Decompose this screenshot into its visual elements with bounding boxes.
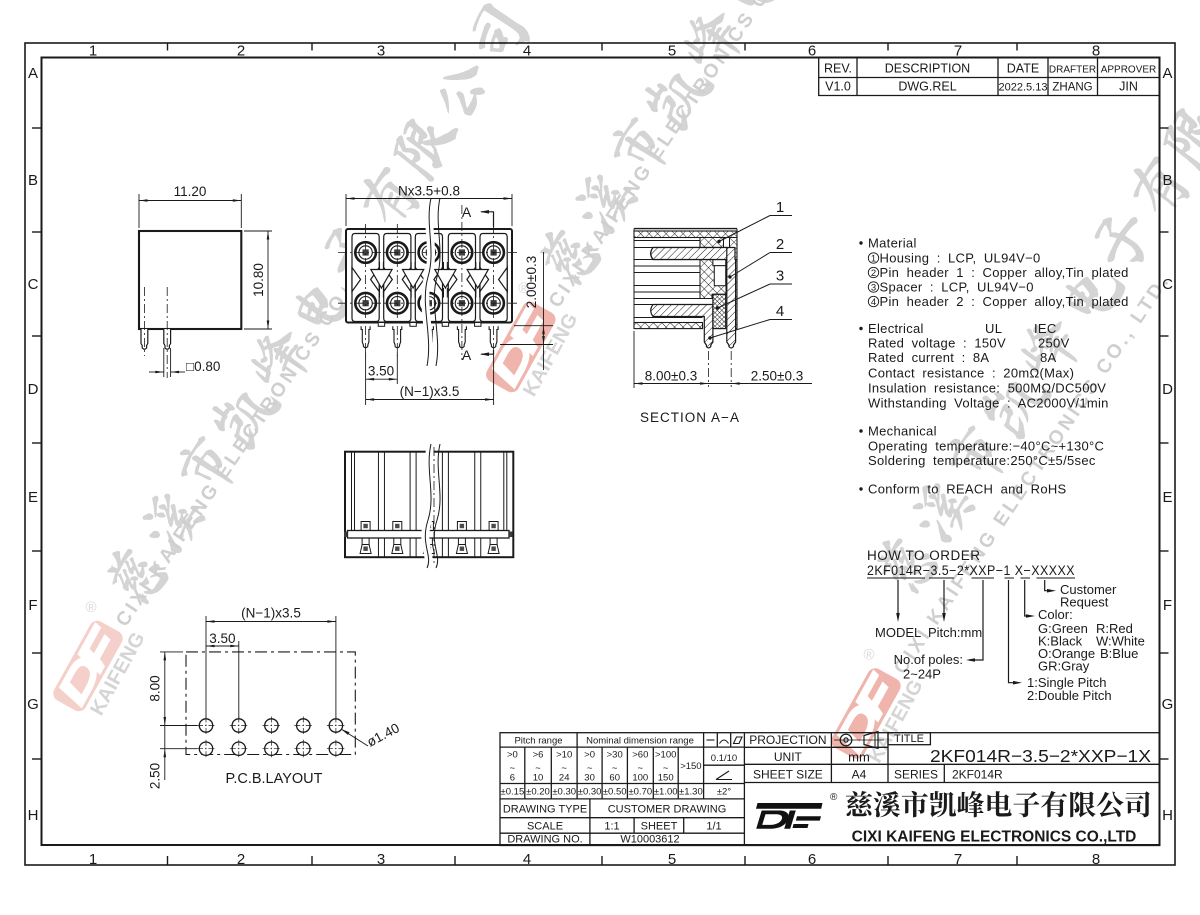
svg-text:JIN: JIN — [1119, 80, 1138, 94]
svg-text:Operating temperature:−40°C~+1: Operating temperature:−40°C~+130°C — [868, 439, 1104, 454]
svg-text:mm: mm — [848, 750, 870, 765]
svg-text:E: E — [28, 489, 38, 506]
svg-text:±0.70: ±0.70 — [628, 787, 652, 798]
svg-text:Soldering temperature:250°C±5/: Soldering temperature:250°C±5/5sec — [868, 453, 1096, 468]
svg-text:B: B — [28, 172, 38, 189]
svg-text:ZHANG: ZHANG — [1052, 82, 1092, 94]
svg-text:3: 3 — [377, 43, 385, 60]
svg-text:5: 5 — [668, 851, 676, 868]
svg-text:100: 100 — [632, 773, 648, 784]
svg-text:REV.: REV. — [824, 62, 852, 76]
svg-text:2.00±0.3: 2.00±0.3 — [524, 256, 539, 308]
svg-text:DATE: DATE — [1007, 62, 1039, 76]
svg-text:4: 4 — [776, 303, 784, 320]
svg-text:E: E — [1162, 489, 1172, 506]
svg-text:3: 3 — [776, 268, 784, 285]
svg-text:±0.50: ±0.50 — [603, 787, 627, 798]
svg-text:Pitch:mm: Pitch:mm — [928, 625, 982, 640]
svg-text:1: 1 — [89, 43, 97, 60]
svg-text:±1.00: ±1.00 — [654, 787, 678, 798]
svg-text:2.50±0.3: 2.50±0.3 — [751, 369, 803, 384]
svg-text:ø1.40: ø1.40 — [364, 720, 402, 749]
svg-text:®: ® — [830, 792, 838, 803]
svg-text:1/1: 1/1 — [706, 821, 721, 833]
svg-text:HOW TO ORDER: HOW TO ORDER — [867, 548, 981, 563]
svg-text:UL: UL — [985, 321, 1002, 336]
svg-text:Contact resistance : 20mΩ(Max): Contact resistance : 20mΩ(Max) — [868, 366, 1074, 381]
svg-text:±0.30: ±0.30 — [552, 787, 576, 798]
svg-text:□0.80: □0.80 — [186, 359, 220, 374]
svg-text:B:Blue: B:Blue — [1100, 646, 1138, 661]
svg-text:Request: Request — [1060, 595, 1109, 610]
svg-text:60: 60 — [609, 773, 620, 784]
svg-text:10: 10 — [533, 773, 544, 784]
svg-text:CIXI KAIFENG ELECTRONICS CO.,L: CIXI KAIFENG ELECTRONICS CO.,LTD — [852, 829, 1137, 846]
svg-text:>60: >60 — [632, 750, 648, 761]
svg-text:Pin header 2 : Copper alloy,Ti: Pin header 2 : Copper alloy,Tin plated — [880, 294, 1129, 309]
svg-text:2: 2 — [237, 43, 245, 60]
svg-text:Conform to REACH and RoHS: Conform to REACH and RoHS — [868, 482, 1067, 497]
svg-text:H: H — [28, 807, 39, 824]
svg-text:1: 1 — [89, 851, 97, 868]
svg-text:Withstanding Voltage : AC2000V: Withstanding Voltage : AC2000V/1min — [868, 396, 1109, 411]
svg-text:±0.15: ±0.15 — [501, 787, 525, 798]
svg-text:F: F — [1163, 597, 1172, 614]
svg-text:(N−1)x3.5: (N−1)x3.5 — [400, 384, 460, 399]
svg-text:10.80: 10.80 — [251, 263, 266, 297]
svg-text:2: 2 — [237, 851, 245, 868]
svg-text:Insulation resistance: 500MΩ/D: Insulation resistance: 500MΩ/DC500V — [868, 381, 1106, 396]
svg-text:2KF014R−3.5−2*XXP−1 X−XXXXX: 2KF014R−3.5−2*XXP−1 X−XXXXX — [867, 563, 1075, 578]
svg-text:DWG.REL: DWG.REL — [898, 80, 956, 94]
svg-text:No.of poles:: No.of poles: — [894, 652, 963, 667]
svg-text:SCALE: SCALE — [527, 821, 563, 833]
svg-text:A: A — [462, 204, 472, 220]
svg-text:TITLE: TITLE — [894, 733, 924, 745]
svg-text:>150: >150 — [680, 761, 701, 772]
svg-text:24: 24 — [559, 773, 570, 784]
svg-text:Nominal dimension range: Nominal dimension range — [586, 736, 694, 747]
svg-text:PROJECTION: PROJECTION — [749, 733, 826, 747]
svg-text:2: 2 — [871, 268, 876, 279]
svg-text:250V: 250V — [1038, 336, 1070, 351]
svg-text:2.50: 2.50 — [148, 763, 163, 789]
svg-text:(N−1)x3.5: (N−1)x3.5 — [241, 606, 301, 621]
svg-text:8: 8 — [1092, 43, 1100, 60]
svg-text:V1.0: V1.0 — [825, 80, 851, 94]
svg-text:8: 8 — [1092, 851, 1100, 868]
svg-text:8.00±0.3: 8.00±0.3 — [645, 369, 697, 384]
svg-text:±0.20: ±0.20 — [526, 787, 550, 798]
svg-text:A: A — [1162, 65, 1172, 82]
svg-text:3.50: 3.50 — [209, 631, 235, 646]
svg-text:A: A — [28, 65, 38, 82]
svg-text:6: 6 — [510, 773, 515, 784]
svg-text:±2°: ±2° — [717, 787, 731, 798]
svg-text:CUSTOMER DRAWING: CUSTOMER DRAWING — [608, 804, 727, 816]
svg-text:3: 3 — [377, 851, 385, 868]
svg-text:>30: >30 — [607, 750, 623, 761]
svg-text:Nx3.5+0.8: Nx3.5+0.8 — [398, 184, 460, 199]
svg-text:Mechanical: Mechanical — [868, 424, 937, 439]
svg-text:CIXI KAIFENG ELECTRONICS CO.,: CIXI KAIFENG ELECTRONICS CO., LTD. — [890, 270, 1175, 678]
svg-text:W10003612: W10003612 — [620, 834, 679, 846]
svg-text:2: 2 — [776, 236, 784, 253]
svg-text:G: G — [27, 696, 39, 713]
svg-text:1:1: 1:1 — [604, 821, 619, 833]
svg-text:2~24P: 2~24P — [903, 667, 941, 682]
svg-text:>6: >6 — [533, 750, 544, 761]
svg-text:11.20: 11.20 — [174, 184, 207, 199]
svg-text:Pitch range: Pitch range — [514, 736, 562, 747]
svg-text:G: G — [1162, 696, 1174, 713]
svg-text:±1.30: ±1.30 — [679, 787, 703, 798]
svg-text:30: 30 — [584, 773, 595, 784]
svg-text:Spacer : LCP, UL94V−0: Spacer : LCP, UL94V−0 — [880, 280, 1034, 295]
svg-text:DESCRIPTION: DESCRIPTION — [885, 62, 970, 76]
svg-text:CIXI KAIFENG ELECTRONICS CO.,: CIXI KAIFENG ELECTRONICS CO., LTD. — [544, 0, 829, 312]
svg-text:0.1/10: 0.1/10 — [711, 753, 737, 764]
svg-text:SHEET: SHEET — [641, 821, 678, 833]
svg-text:2:Double Pitch: 2:Double Pitch — [1027, 688, 1112, 703]
svg-text:±0.30: ±0.30 — [578, 787, 602, 798]
svg-text:UNIT: UNIT — [774, 750, 803, 764]
svg-text:APPROVER: APPROVER — [1101, 65, 1157, 76]
svg-text:DRAWING TYPE: DRAWING TYPE — [503, 804, 587, 816]
svg-text:3: 3 — [871, 282, 876, 293]
svg-text:D: D — [28, 381, 39, 398]
svg-text:DRAFTER: DRAFTER — [1049, 65, 1096, 76]
svg-text:®: ® — [85, 599, 96, 616]
svg-text:®: ® — [863, 647, 874, 664]
svg-text:Rated current : 8A: Rated current : 8A — [868, 350, 989, 365]
svg-text:DRAWING NO.: DRAWING NO. — [507, 834, 582, 846]
svg-text:3.50: 3.50 — [368, 364, 394, 379]
svg-text:SECTION A−A: SECTION A−A — [640, 410, 740, 425]
svg-text:P.C.B.LAYOUT: P.C.B.LAYOUT — [226, 771, 323, 787]
svg-text:>0: >0 — [507, 750, 518, 761]
svg-text:4: 4 — [523, 851, 531, 868]
svg-text:>10: >10 — [556, 750, 572, 761]
svg-text:C: C — [1162, 276, 1173, 293]
svg-text:Pin header 1 : Copper alloy,Ti: Pin header 1 : Copper alloy,Tin plated — [880, 265, 1129, 280]
svg-text:4: 4 — [871, 297, 876, 308]
svg-text:8A: 8A — [1040, 350, 1057, 365]
svg-text:6: 6 — [808, 43, 816, 60]
svg-text:GR:Gray: GR:Gray — [1038, 659, 1090, 674]
svg-text:Material: Material — [868, 236, 917, 251]
svg-text:8.00: 8.00 — [148, 675, 163, 701]
svg-text:1: 1 — [871, 253, 876, 264]
svg-text:D: D — [1162, 381, 1173, 398]
svg-text:MODEL: MODEL — [875, 625, 921, 640]
svg-text:Electrical: Electrical — [868, 321, 924, 336]
svg-text:2022.5.13: 2022.5.13 — [999, 82, 1048, 94]
svg-text:7: 7 — [954, 851, 962, 868]
svg-text:150: 150 — [658, 773, 674, 784]
svg-text:2KF014R−3.5−2*XXP−1X: 2KF014R−3.5−2*XXP−1X — [930, 746, 1151, 766]
svg-text:A4: A4 — [852, 768, 867, 782]
svg-text:A: A — [462, 347, 472, 363]
svg-text:H: H — [1162, 807, 1173, 824]
svg-text:SHEET SIZE: SHEET SIZE — [753, 768, 823, 782]
svg-text:IEC: IEC — [1034, 321, 1057, 336]
svg-text:6: 6 — [808, 851, 816, 868]
svg-text:F: F — [28, 597, 37, 614]
svg-text:Rated voltage : 150V: Rated voltage : 150V — [868, 336, 1006, 351]
svg-text:>0: >0 — [584, 750, 595, 761]
svg-text:Housing : LCP, UL94V−0: Housing : LCP, UL94V−0 — [880, 251, 1041, 266]
svg-text:>100: >100 — [655, 750, 676, 761]
svg-text:4: 4 — [523, 43, 531, 60]
svg-text:B: B — [1162, 172, 1172, 189]
svg-text:2KF014R: 2KF014R — [952, 768, 1003, 782]
svg-text:5: 5 — [668, 43, 676, 60]
svg-text:SERIES: SERIES — [894, 768, 938, 782]
svg-text:7: 7 — [954, 43, 962, 60]
svg-text:C: C — [28, 276, 39, 293]
svg-text:1: 1 — [776, 199, 784, 216]
